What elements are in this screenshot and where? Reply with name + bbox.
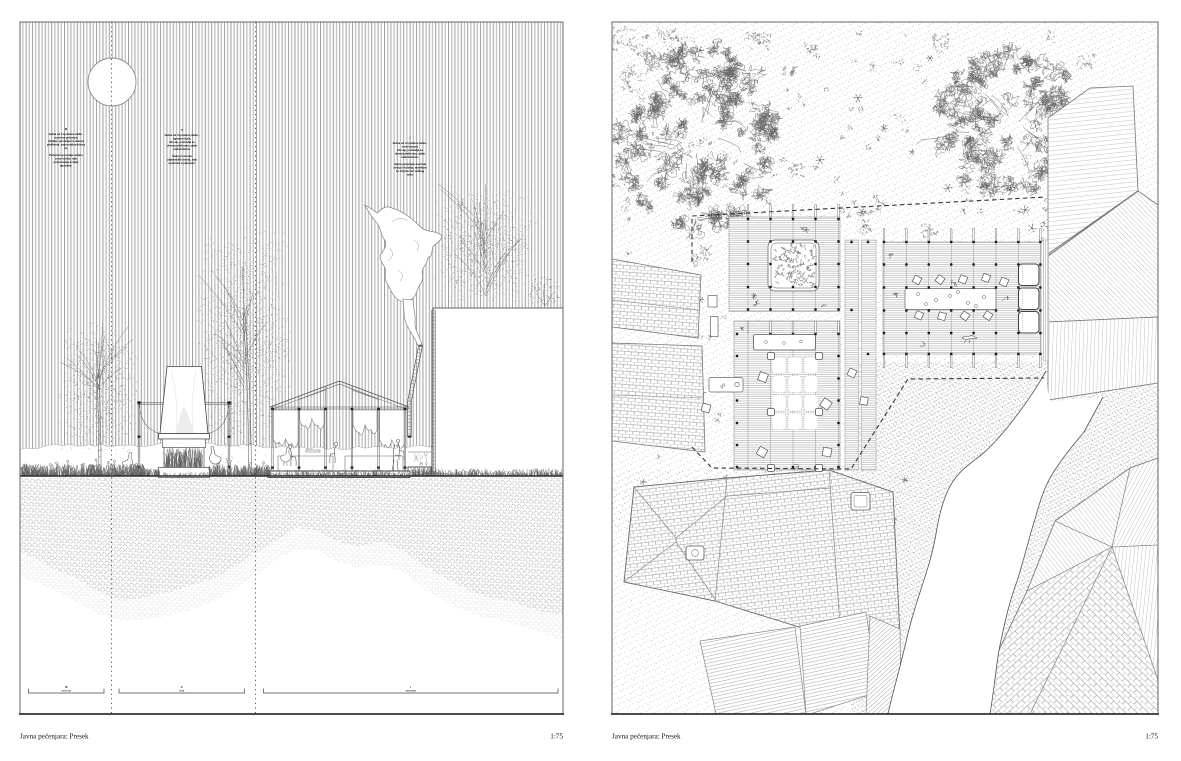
svg-text:Javna pečenjara: Presek: Javna pečenjara: Presek xyxy=(20,733,89,741)
svg-text:šešica i kuhinja, manikura: šešica i kuhinja, manikura xyxy=(393,166,427,170)
svg-text:1:75: 1:75 xyxy=(550,733,563,741)
svg-text:Javna pečenjara: Presek: Javna pečenjara: Presek xyxy=(612,733,681,741)
svg-text:stola.: stola. xyxy=(406,173,413,177)
svg-text:Javna pečenjara nacrtala: Javna pečenjara nacrtala xyxy=(394,162,426,166)
svg-text:drvena platforma, zatim: drvena platforma, zatim xyxy=(167,143,198,147)
svg-text:škriljac, postavlja se drvena: škriljac, postavlja se drvena xyxy=(48,139,84,143)
svg-text:Jedna od tri polazne tačke -: Jedna od tri polazne tačke - xyxy=(392,141,427,145)
svg-text:nadstrešnica.: nadstrešnica. xyxy=(173,147,191,151)
svg-text:sa.: sa. xyxy=(64,147,68,150)
svg-text:Sada prostorija: Sada prostorija xyxy=(172,154,192,158)
svg-text:pečenjara: pečenjara xyxy=(406,690,417,693)
svg-text:III: III xyxy=(65,685,67,689)
svg-text:zajedničkih mesta, radi: zajedničkih mesta, radi xyxy=(167,158,197,162)
svg-text:Jedna od tri polazne tačke -: Jedna od tri polazne tačke - xyxy=(48,132,83,136)
svg-text:osnovna pečenica:: osnovna pečenica: xyxy=(54,135,78,139)
svg-text:zonu ložišta, radi: zonu ložišta, radi xyxy=(55,157,77,161)
svg-text:nadstrešnica.: nadstrešnica. xyxy=(401,155,419,159)
svg-text:osnovna peć: osnovna peć xyxy=(402,144,419,148)
svg-text:1:75: 1:75 xyxy=(1145,733,1158,741)
svg-text:pečenica: pečenica xyxy=(62,691,72,693)
svg-text:II: II xyxy=(181,128,183,132)
svg-text:drvena platforma, zatim: drvena platforma, zatim xyxy=(395,151,426,155)
svg-text:upotrebe u polenjavi.: upotrebe u polenjavi. xyxy=(168,161,195,165)
svg-text:se zimýša oko velikog: se zimýša oko velikog xyxy=(396,169,425,173)
svg-text:III: III xyxy=(65,127,67,131)
svg-text:Pečenica poseduje zidanu: Pečenica poseduje zidanu xyxy=(49,153,83,157)
svg-text:čito-up, postavlja se: čito-up, postavlja se xyxy=(169,140,195,144)
svg-text:kuća: kuća xyxy=(179,691,185,693)
svg-text:pripremanja & dalje: pripremanja & dalje xyxy=(54,160,79,164)
svg-text:čito-up, postavlja se: čito-up, postavlja se xyxy=(397,148,423,152)
svg-text:Jedna od tri polazne tačke -: Jedna od tri polazne tačke - xyxy=(164,133,199,137)
svg-text:upotrebe.: upotrebe. xyxy=(60,164,72,168)
svg-text:ugradna kuća,: ugradna kuća, xyxy=(173,136,191,140)
svg-text:platforma, zatim nadstrešnica: platforma, zatim nadstrešnica xyxy=(47,142,85,146)
